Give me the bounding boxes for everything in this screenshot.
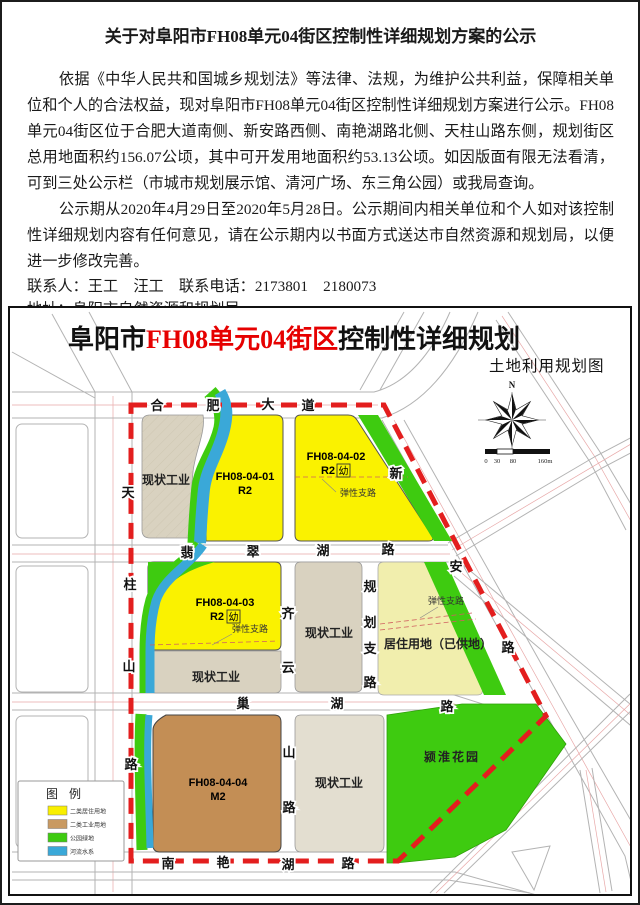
label-yinghuai-garden: 颍淮花园 — [424, 749, 480, 764]
road-label-char: 路 — [440, 699, 454, 714]
map-title-prefix: 阜阳市 — [68, 324, 146, 354]
road-label-char: 湖 — [330, 696, 343, 711]
legend-label: 二类居住用地 — [70, 808, 106, 816]
map-title-highlight: FH08单元04街区 — [146, 325, 338, 354]
map-title-suffix: 控制性详细规划 — [338, 324, 520, 354]
road-label-char: 南 — [161, 856, 174, 871]
contact-line: 联系人：王工 汪工 联系电话：2173801 2180073 — [27, 275, 614, 298]
road-label-char: 路 — [282, 800, 296, 815]
legend-swatch-green — [48, 833, 67, 842]
road-label-char: 湖 — [281, 857, 294, 872]
road-label-char: 柱 — [123, 577, 136, 592]
scale-bar: 0 30 80 160m — [484, 449, 552, 465]
road-label-char: 道 — [301, 398, 314, 413]
road-label-char: 湖 — [316, 543, 329, 558]
notice-paragraph-1: 依据《中华人民共和国城乡规划法》等法律、法规，为维护公共利益，保障相关单位和个人… — [27, 67, 614, 197]
label-fh08-04-04: FH08-04-04 — [189, 777, 249, 789]
kindergarten-mark: 幼 — [339, 465, 349, 478]
road-label-char: 新 — [389, 466, 402, 481]
road-label-char: 路 — [124, 757, 138, 772]
label-fh08-04-03: FH08-04-03 — [196, 597, 255, 609]
label-existing-industry-4: 现状工业 — [315, 775, 363, 790]
road-label-char: 齐 — [281, 606, 295, 621]
stream-water-south — [148, 715, 150, 848]
road-label-char: 划 — [363, 615, 376, 630]
legend: 图 例 二类居住用地 二类工业用地 公园绿地 河流水系 — [18, 781, 124, 861]
legend-label: 公园绿地 — [70, 835, 94, 843]
road-label-char: 路 — [501, 640, 515, 655]
legend-label: 河流水系 — [70, 848, 94, 856]
label-fh08-04-01-use: R2 — [238, 485, 252, 497]
scale-tick: 160m — [538, 458, 553, 465]
elastic-road-note-2: 弹性支路 — [232, 623, 268, 634]
legend-swatch-residential — [48, 806, 67, 815]
kindergarten-mark: 幼 — [229, 611, 239, 624]
road-label-char: 云 — [281, 660, 294, 675]
road-label-char: 规 — [363, 579, 376, 594]
label-existing-industry-1: 现状工业 — [142, 472, 190, 487]
road-label-char: 支 — [362, 641, 377, 656]
label-residential-supplied: 居住用地（已供地） — [384, 636, 492, 651]
label-existing-industry-2: 现状工业 — [192, 669, 240, 684]
road-label-char: 艳 — [216, 855, 229, 870]
legend-title: 图 例 — [46, 787, 85, 801]
road-label-char: 山 — [282, 745, 295, 760]
stream-bank-south — [140, 714, 142, 850]
road-label-char: 翠 — [246, 544, 259, 559]
notice-text-section: 关于对阜阳市FH08单元04街区控制性详细规划方案的公示 依据《中华人民共和国城… — [0, 0, 640, 306]
elastic-road-note-1: 弹性支路 — [340, 487, 376, 498]
road-label-char: 路 — [341, 856, 355, 871]
legend-swatch-industrial — [48, 820, 67, 829]
notice-title: 关于对阜阳市FH08单元04街区控制性详细规划方案的公示 — [27, 22, 614, 47]
road-label-char: 合 — [150, 398, 164, 413]
road-label-char: 路 — [381, 542, 395, 557]
north-label: N — [509, 380, 516, 390]
label-existing-industry-3: 现状工业 — [305, 625, 353, 640]
map-title: 阜阳市FH08单元04街区控制性详细规划 — [68, 324, 520, 354]
map-subtitle: 土地利用规划图 — [489, 357, 605, 375]
label-fh08-04-04-use: M2 — [210, 791, 225, 803]
road-label-char: 翡 — [180, 545, 193, 560]
land-use-map: 现状工业 FH08-04-01 R2 FH08-04-02 R2 幼 弹性支路 … — [8, 306, 632, 896]
scale-tick: 80 — [510, 458, 517, 465]
label-fh08-04-03-use: R2 — [210, 611, 224, 623]
legend-swatch-water — [48, 847, 67, 856]
legend-label: 二类工业用地 — [70, 821, 106, 829]
scale-tick: 0 — [484, 458, 487, 465]
notice-page: 关于对阜阳市FH08单元04街区控制性详细规划方案的公示 依据《中华人民共和国城… — [0, 0, 640, 905]
road-label-char: 肥 — [206, 398, 219, 413]
compass-rose-icon: N — [478, 380, 546, 452]
road-label-char: 大 — [261, 397, 274, 412]
scale-tick: 30 — [494, 458, 501, 465]
road-label-char: 路 — [363, 675, 377, 690]
map-canvas: 现状工业 FH08-04-01 R2 FH08-04-02 R2 幼 弹性支路 … — [10, 308, 630, 894]
road-label-char: 天 — [121, 485, 135, 500]
road-label-char: 安 — [449, 559, 462, 574]
road-label-char: 巢 — [235, 696, 250, 711]
label-fh08-04-02: FH08-04-02 — [307, 451, 366, 463]
label-fh08-04-02-use: R2 — [321, 465, 335, 477]
label-fh08-04-01: FH08-04-01 — [216, 471, 275, 483]
road-label-char: 山 — [122, 659, 135, 674]
elastic-road-note-3: 弹性支路 — [428, 595, 464, 606]
notice-paragraph-2: 公示期从2020年4月29日至2020年5月28日。公示期间内相关单位和个人如对… — [27, 197, 614, 275]
